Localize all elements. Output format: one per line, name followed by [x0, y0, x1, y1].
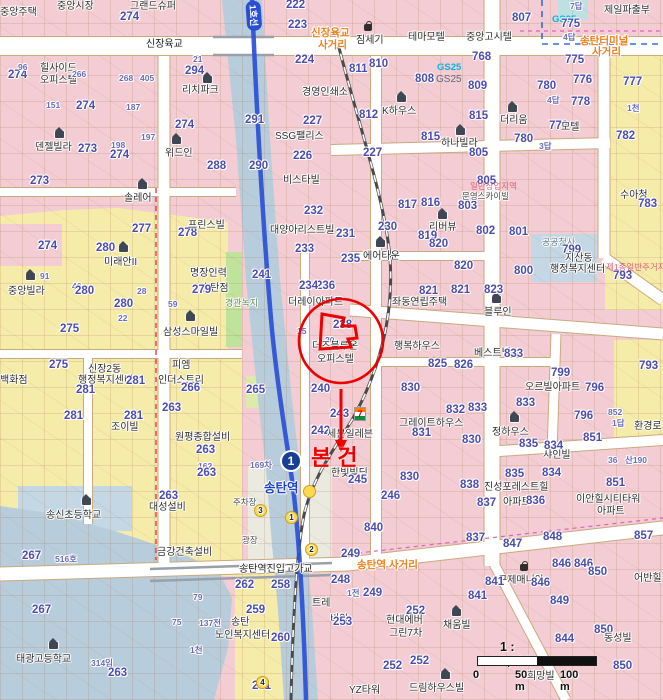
subway-line-1-badge: 1 — [282, 452, 300, 470]
scale-tick-100: 100 m — [560, 669, 578, 693]
road-surfaces — [0, 0, 663, 700]
subway-line-1-label: 1호선 — [245, 0, 262, 31]
subject-label: 본건 — [311, 440, 363, 472]
road-layer — [0, 0, 663, 700]
scale-strip-black — [537, 657, 596, 665]
boundary-magenta-dashed — [350, 31, 663, 554]
scale-strip — [477, 656, 597, 666]
subway-line-1 — [252, 0, 306, 700]
map-canvas[interactable]: 중앙주택중앙시장그랜드슈퍼274222223807GS257답제일파출부신장육교… — [0, 0, 663, 700]
scale-tick-0: 0 — [473, 669, 479, 681]
scale-tick-50: 50 m — [515, 669, 527, 693]
station-name-label: 송탄역 — [264, 477, 299, 496]
